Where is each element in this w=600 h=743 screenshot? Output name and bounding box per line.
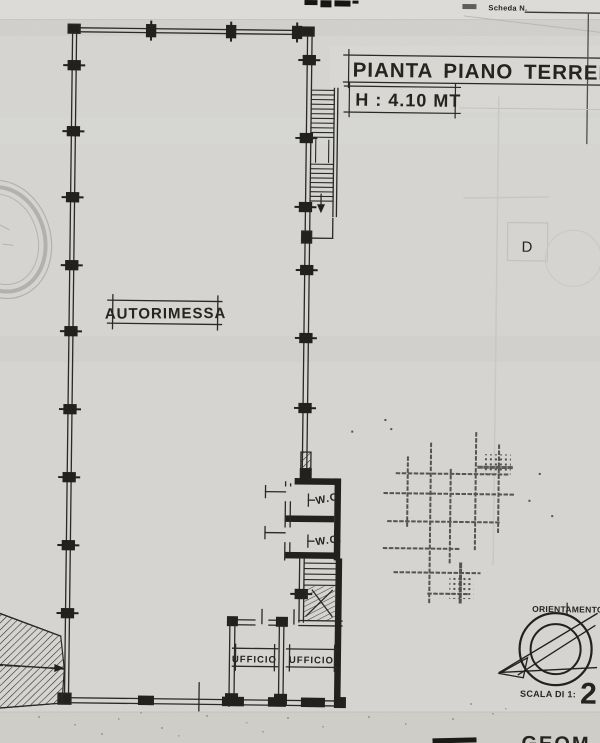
- room-label-office-right: UFFICIO: [289, 655, 334, 667]
- sheet-title: PIANTA PIANO TERRENO: [353, 59, 600, 85]
- scheda-label: Scheda N.: [488, 3, 527, 12]
- paper-texture: [0, 0, 600, 743]
- room-label-garage: AUTORIMESSA: [105, 305, 227, 323]
- floor-plan-scan: Scheda N. PIANTA PIANO TERRENO H : 4.10 …: [0, 0, 600, 743]
- orientation-label: ORIENTAMENTO: [532, 604, 600, 615]
- scale-value: 2: [580, 677, 598, 710]
- ghost-letter: D: [521, 239, 532, 256]
- signature-text: GEOM: [521, 733, 590, 743]
- scanned-floor-plan-sheet: Scheda N. PIANTA PIANO TERRENO H : 4.10 …: [0, 0, 600, 743]
- room-label-office-left: UFFICIO: [232, 654, 277, 666]
- height-note: H : 4.10 MT: [355, 90, 461, 111]
- scale-label: SCALA DI 1:: [520, 689, 576, 700]
